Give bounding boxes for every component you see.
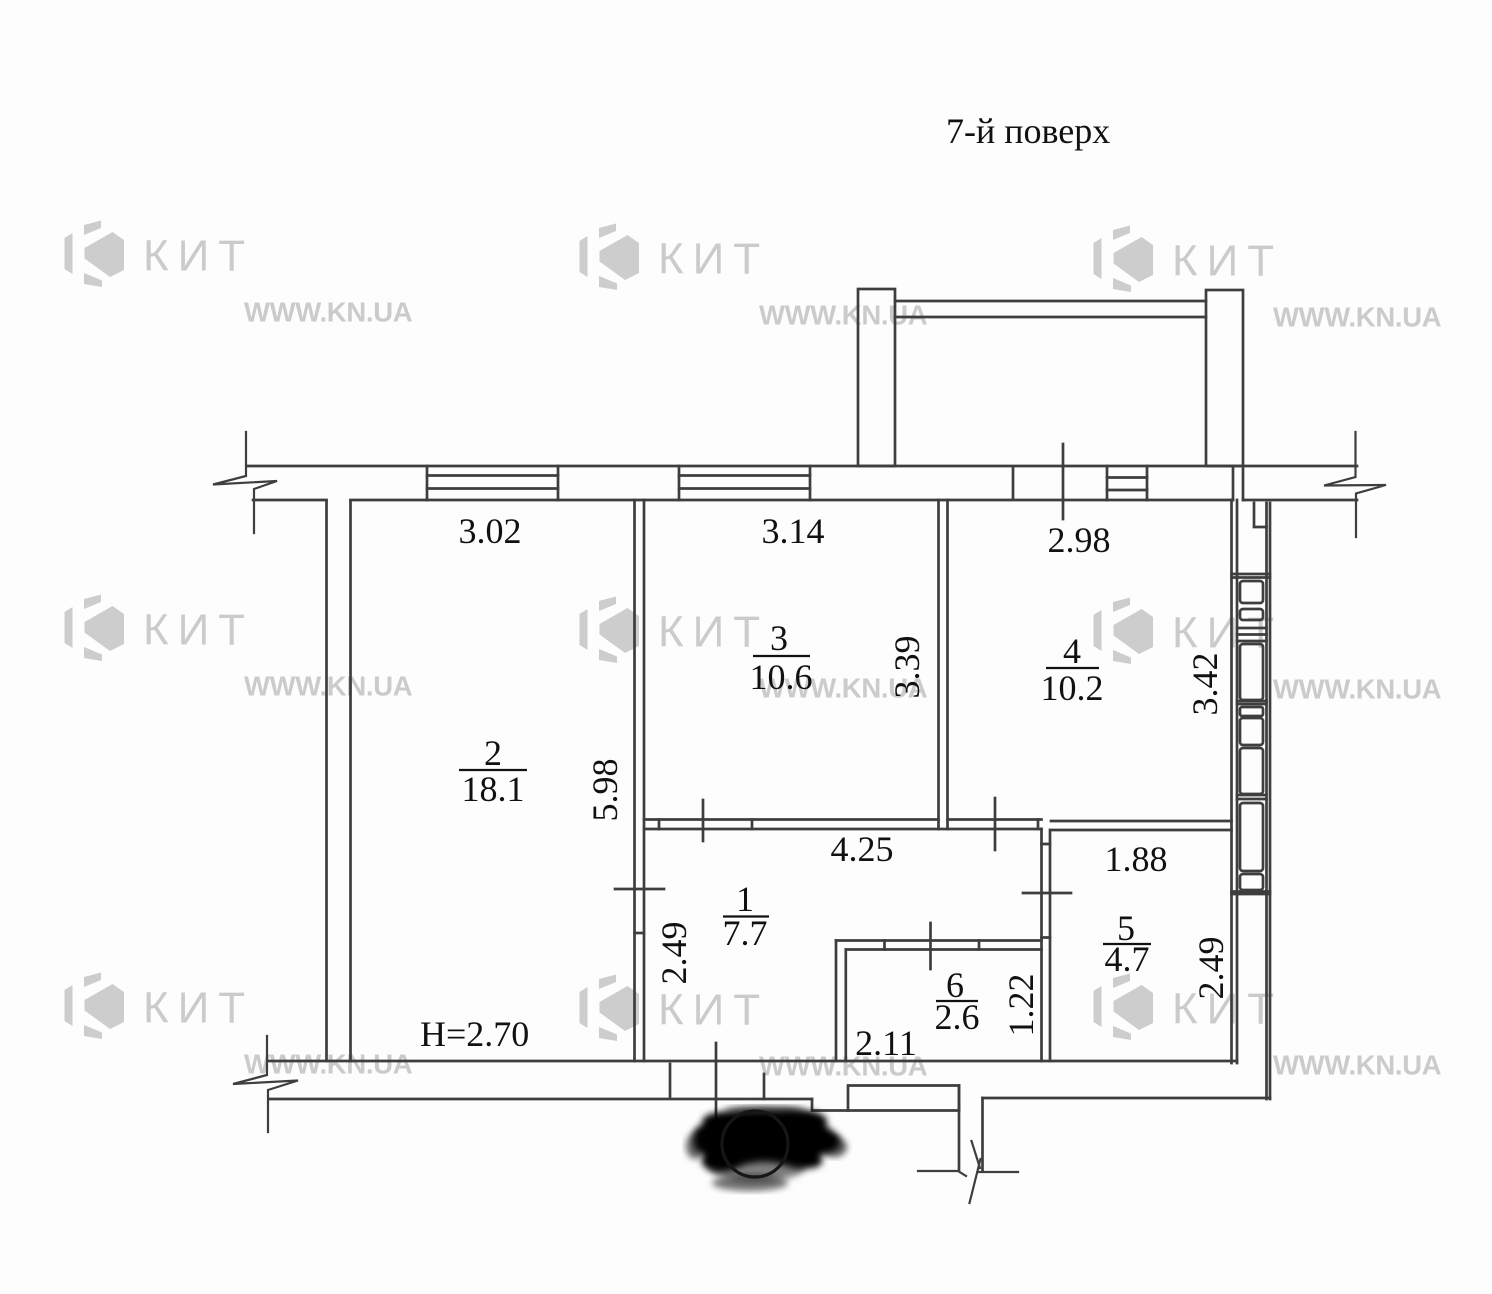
- svg-text:2.49: 2.49: [654, 922, 694, 985]
- svg-text:2: 2: [484, 733, 502, 773]
- svg-text:4.25: 4.25: [831, 829, 894, 869]
- svg-text:3.02: 3.02: [459, 511, 522, 551]
- svg-text:1.88: 1.88: [1105, 839, 1168, 879]
- svg-text:7-й поверх: 7-й поверх: [946, 111, 1110, 151]
- svg-text:3.14: 3.14: [762, 511, 825, 551]
- svg-text:4: 4: [1063, 631, 1081, 671]
- svg-text:3: 3: [770, 618, 788, 658]
- svg-text:4.7: 4.7: [1105, 939, 1150, 979]
- svg-text:3.39: 3.39: [887, 636, 927, 699]
- svg-text:1.22: 1.22: [1001, 974, 1041, 1037]
- svg-text:2.6: 2.6: [935, 997, 980, 1037]
- svg-text:5.98: 5.98: [585, 759, 625, 822]
- svg-text:2.11: 2.11: [855, 1023, 917, 1063]
- svg-text:10.6: 10.6: [750, 657, 813, 697]
- svg-text:10.2: 10.2: [1041, 668, 1104, 708]
- svg-text:18.1: 18.1: [462, 769, 525, 809]
- svg-text:3.42: 3.42: [1185, 653, 1225, 716]
- svg-text:7.7: 7.7: [723, 913, 768, 953]
- svg-text:2.49: 2.49: [1191, 937, 1231, 1000]
- svg-text:H=2.70: H=2.70: [420, 1014, 529, 1054]
- svg-text:2.98: 2.98: [1048, 520, 1111, 560]
